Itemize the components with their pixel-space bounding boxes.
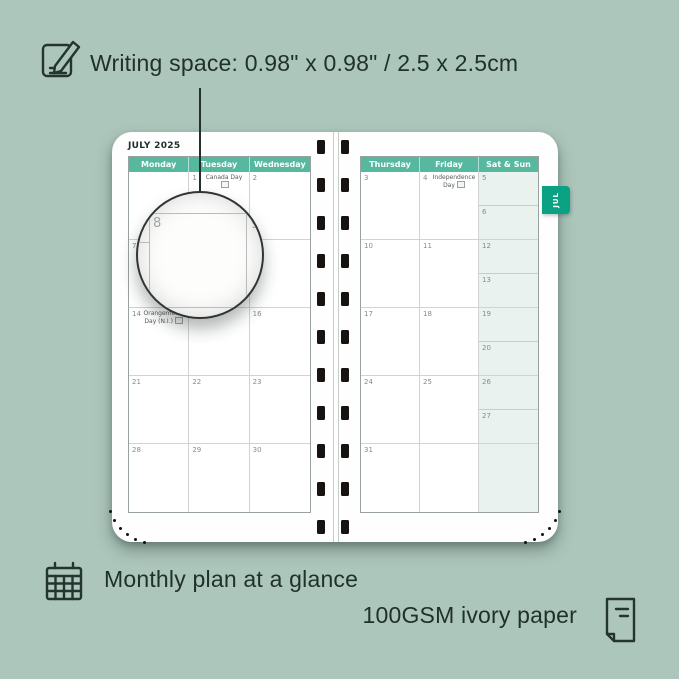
callout-pointer-line: [199, 88, 201, 193]
spiral-hole: [317, 482, 325, 496]
paper-label: 100GSM ivory paper: [362, 602, 577, 629]
day-number: 24: [364, 378, 373, 386]
day-number: 13: [482, 276, 491, 284]
day-number: 14: [132, 310, 141, 318]
weekend-cell: 2627: [479, 376, 538, 444]
weekday-header: Monday: [129, 157, 189, 172]
day-cell: 22: [189, 376, 249, 444]
stitch-dot: [143, 541, 146, 544]
paper-sheet-icon: [597, 594, 641, 646]
day-cell: 30: [250, 444, 310, 512]
weekend-cell: 1213: [479, 240, 538, 308]
spiral-hole: [341, 254, 349, 268]
stitch-dot: [113, 519, 116, 522]
day-cell: 10: [361, 240, 420, 308]
day-cell: 17: [361, 308, 420, 376]
weekend-cell: 1920: [479, 308, 538, 376]
day-number: 25: [423, 378, 432, 386]
day-number: 6: [482, 208, 486, 216]
stitch-dot: [109, 510, 112, 513]
lens-grid-line: [138, 213, 262, 214]
day-number: 1: [192, 174, 196, 182]
spiral-hole: [341, 368, 349, 382]
stitch-dot: [533, 538, 536, 541]
day-number: 22: [192, 378, 201, 386]
lens-grid-line: [246, 193, 247, 317]
lens-grid-line: [138, 242, 149, 243]
spiral-hole: [317, 368, 325, 382]
day-cell: 11: [420, 240, 479, 308]
weekday-header: Thursday: [361, 157, 420, 172]
calendar-grid-icon: [40, 558, 88, 606]
day-number: 29: [192, 446, 201, 454]
note-pencil-icon: [36, 35, 84, 83]
spiral-hole: [341, 482, 349, 496]
day-number: 5: [482, 174, 486, 182]
day-number: 11: [423, 242, 432, 250]
day-number: 23: [253, 378, 262, 386]
stitch-dot: [524, 541, 527, 544]
day-cell: 16: [250, 308, 310, 376]
day-number: 21: [132, 378, 141, 386]
stitch-dot: [126, 533, 129, 536]
sun-half: 20: [479, 342, 538, 376]
day-cell: [420, 444, 479, 512]
day-cell: 3: [361, 172, 420, 240]
day-cell: 18: [420, 308, 479, 376]
day-number: 20: [482, 344, 491, 352]
day-cell: 24: [361, 376, 420, 444]
weekday-header: Wednesday: [250, 157, 310, 172]
spiral-hole: [341, 140, 349, 154]
day-cell: 25: [420, 376, 479, 444]
sat-half: 5: [479, 172, 538, 206]
stitch-dot: [119, 527, 122, 530]
weekend-cell: [479, 444, 538, 512]
holiday-label: Canada Day: [201, 174, 246, 189]
sun-half: 6: [479, 206, 538, 240]
month-tab-label: JUL: [552, 192, 560, 208]
spiral-hole: [341, 292, 349, 306]
stitch-dot: [541, 533, 544, 536]
sat-half: 19: [479, 308, 538, 342]
lens-adjacent-day: 9: [251, 217, 259, 232]
spiral-hole: [317, 406, 325, 420]
spiral-hole: [341, 444, 349, 458]
day-number: 30: [253, 446, 262, 454]
weekday-header: Sat & Sun: [479, 157, 538, 172]
spiral-hole: [341, 178, 349, 192]
sun-half: 13: [479, 274, 538, 308]
day-number: 28: [132, 446, 141, 454]
right-page-calendar: ThursdayFridaySat & Sun34Independence Da…: [360, 156, 539, 513]
day-cell: 4Independence Day: [420, 172, 479, 240]
holiday-flag-icon: [457, 181, 465, 188]
holiday-flag-icon: [175, 317, 183, 324]
day-cell: 29: [189, 444, 249, 512]
day-number: 10: [364, 242, 373, 250]
lens-grid-line: [138, 307, 262, 308]
day-number: 12: [482, 242, 491, 250]
day-number: 2: [253, 174, 257, 182]
holiday-label: Independence Day: [432, 174, 476, 189]
day-number: 18: [423, 310, 432, 318]
day-number: 17: [364, 310, 373, 318]
spiral-hole: [341, 406, 349, 420]
weekday-header: Friday: [420, 157, 479, 172]
spiral-hole: [317, 140, 325, 154]
spiral-hole: [317, 330, 325, 344]
sat-half: 12: [479, 240, 538, 274]
spiral-hole: [317, 216, 325, 230]
monthly-plan-label: Monthly plan at a glance: [104, 566, 358, 593]
day-cell: 23: [250, 376, 310, 444]
magnifier-lens: 8 9: [136, 191, 264, 319]
sun-half: 27: [479, 410, 538, 444]
spiral-hole: [341, 216, 349, 230]
spiral-hole: [341, 520, 349, 534]
weekend-cell: 56: [479, 172, 538, 240]
sat-half: 26: [479, 376, 538, 410]
stitch-dot: [558, 510, 561, 513]
day-cell: 14Orangemen's Day (N.I.): [129, 308, 189, 376]
day-number: 19: [482, 310, 491, 318]
lens-magnified-day: 8: [153, 216, 161, 231]
day-number: 3: [364, 174, 368, 182]
month-tab: JUL: [542, 186, 570, 214]
day-cell: 31: [361, 444, 420, 512]
writing-space-label: Writing space: 0.98" x 0.98" / 2.5 x 2.5…: [90, 50, 518, 77]
spiral-hole: [317, 292, 325, 306]
month-title: JULY 2025: [128, 141, 180, 151]
book-spine: [333, 132, 339, 542]
lens-grid-line: [149, 213, 150, 317]
day-number: 26: [482, 378, 491, 386]
day-number: 16: [253, 310, 262, 318]
spiral-hole: [341, 330, 349, 344]
spiral-hole: [317, 178, 325, 192]
day-number: 4: [423, 174, 427, 182]
stitch-dot: [134, 538, 137, 541]
stitch-dot: [548, 527, 551, 530]
day-cell: 21: [129, 376, 189, 444]
stitch-dot: [554, 519, 557, 522]
day-number: 31: [364, 446, 373, 454]
spiral-hole: [317, 444, 325, 458]
spiral-hole: [317, 520, 325, 534]
day-number: 27: [482, 412, 491, 420]
day-cell: 28: [129, 444, 189, 512]
holiday-flag-icon: [221, 181, 229, 188]
product-infographic: { "colors": { "background": "#adc6bb", "…: [0, 0, 679, 679]
spiral-hole: [317, 254, 325, 268]
